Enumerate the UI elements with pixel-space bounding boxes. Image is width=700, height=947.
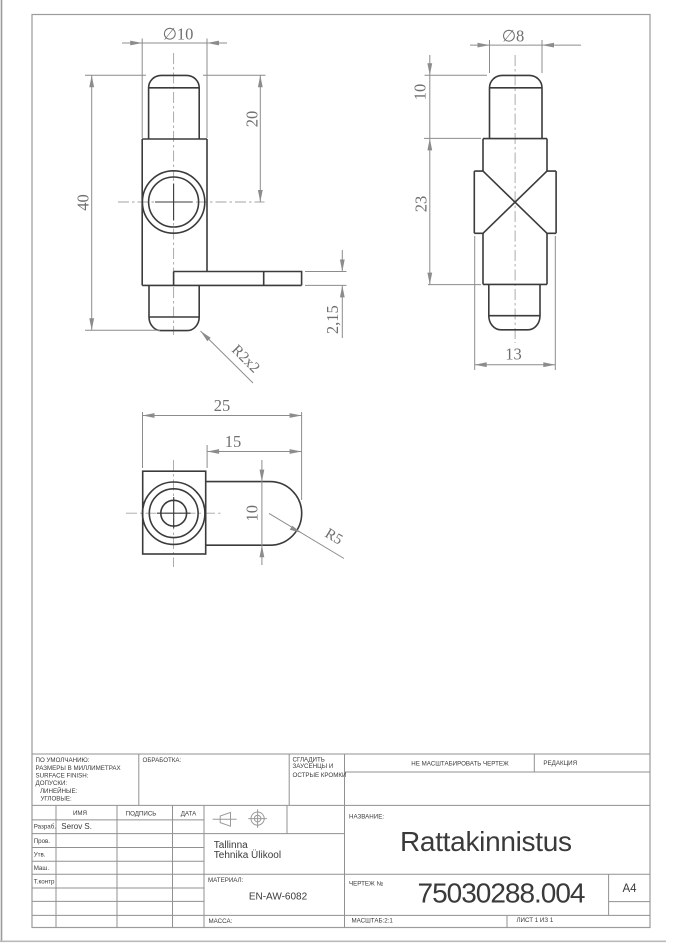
svg-text:Утв.: Утв.	[34, 852, 46, 859]
svg-text:10: 10	[411, 84, 430, 101]
svg-text:Пров.: Пров.	[34, 838, 51, 845]
svg-text:A4: A4	[622, 883, 637, 895]
svg-text:Т.контр: Т.контр	[34, 879, 55, 886]
svg-text:ИМЯ: ИМЯ	[73, 810, 87, 817]
svg-text:ЛИСТ 1 ИЗ 1: ЛИСТ 1 ИЗ 1	[517, 917, 554, 924]
svg-text:УГЛОВЫЕ:: УГЛОВЫЕ:	[41, 796, 73, 803]
svg-text:R2x2: R2x2	[228, 342, 262, 376]
svg-text:НЕ МАСШТАБИРОВАТЬ ЧЕРТЕЖ: НЕ МАСШТАБИРОВАТЬ ЧЕРТЕЖ	[411, 761, 509, 768]
svg-text:РЕДАКЦИЯ: РЕДАКЦИЯ	[543, 760, 577, 767]
svg-text:ДОПУСКИ:: ДОПУСКИ:	[36, 780, 68, 787]
svg-text:МАСШТАБ:2:1: МАСШТАБ:2:1	[352, 918, 394, 925]
svg-text:EN-AW-6082: EN-AW-6082	[249, 892, 308, 903]
svg-text:25: 25	[214, 396, 231, 415]
svg-text:МАТЕРИАЛ:: МАТЕРИАЛ:	[208, 877, 244, 884]
svg-text:Tehnika Ülikool: Tehnika Ülikool	[214, 849, 281, 861]
svg-text:Разраб.: Разраб.	[34, 824, 57, 831]
svg-text:∅8: ∅8	[502, 27, 525, 46]
svg-text:15: 15	[225, 432, 242, 451]
svg-text:10: 10	[243, 505, 262, 522]
svg-text:SURFACE FINISH:: SURFACE FINISH:	[36, 773, 89, 780]
svg-text:13: 13	[505, 345, 522, 364]
svg-text:R5: R5	[322, 526, 345, 549]
svg-text:ЛИНЕЙНЫЕ:: ЛИНЕЙНЫЕ:	[40, 787, 78, 795]
svg-text:ОБРАБОТКА:: ОБРАБОТКА:	[143, 757, 182, 764]
svg-text:20: 20	[243, 111, 262, 128]
svg-text:75030288.004: 75030288.004	[418, 877, 586, 908]
svg-text:Serov S.: Serov S.	[61, 822, 92, 831]
svg-text:∅10: ∅10	[163, 25, 194, 44]
svg-text:РАЗМЕРЫ В МИЛЛИМЕТРАХ: РАЗМЕРЫ В МИЛЛИМЕТРАХ	[36, 765, 121, 772]
svg-text:МАССА:: МАССА:	[209, 918, 233, 925]
svg-text:Маш.: Маш.	[34, 865, 50, 872]
svg-text:ЗАУСЕНЦЫ И: ЗАУСЕНЦЫ И	[293, 763, 334, 770]
svg-text:НАЗВАНИЕ:: НАЗВАНИЕ:	[349, 814, 384, 821]
svg-text:ПО УМОЛЧАНИЮ:: ПО УМОЛЧАНИЮ:	[36, 757, 90, 764]
svg-text:2,15: 2,15	[323, 305, 342, 334]
svg-text:Rattakinnistus: Rattakinnistus	[400, 826, 572, 857]
svg-text:40: 40	[74, 194, 93, 211]
svg-text:ПОДПИСЬ: ПОДПИСЬ	[126, 811, 157, 818]
svg-text:ДАТА: ДАТА	[181, 811, 197, 818]
svg-text:23: 23	[411, 196, 430, 213]
svg-text:ОСТРЫЕ КРОМКИ: ОСТРЫЕ КРОМКИ	[293, 772, 347, 779]
svg-text:ЧЕРТЕЖ №: ЧЕРТЕЖ №	[349, 881, 383, 888]
